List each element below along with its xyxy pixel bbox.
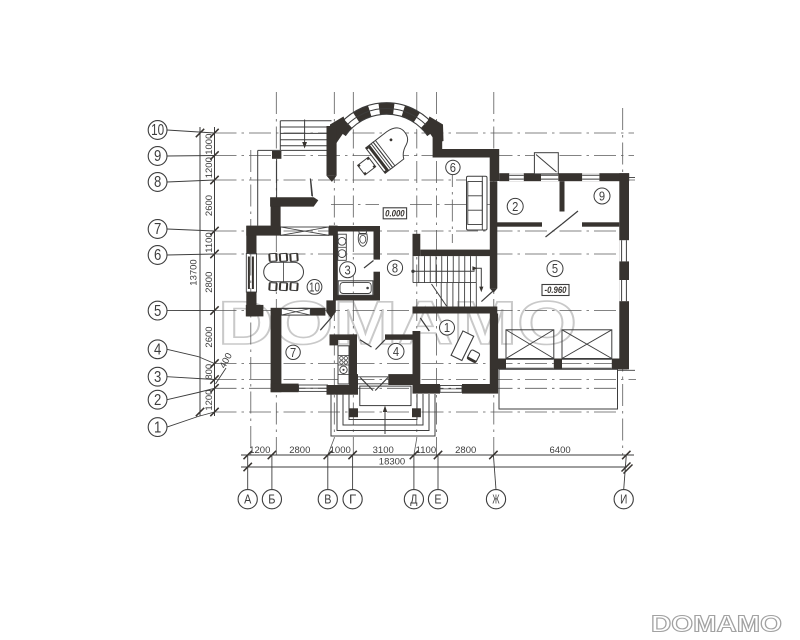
svg-text:3: 3 bbox=[345, 262, 351, 277]
svg-text:1100: 1100 bbox=[204, 232, 215, 252]
svg-text:8: 8 bbox=[392, 260, 398, 275]
svg-text:-0.960: -0.960 bbox=[545, 284, 568, 295]
svg-text:2: 2 bbox=[154, 392, 161, 409]
svg-text:3: 3 bbox=[154, 369, 161, 386]
svg-text:2800: 2800 bbox=[455, 445, 476, 456]
svg-text:10: 10 bbox=[151, 122, 164, 139]
svg-text:Г: Г bbox=[349, 493, 356, 507]
svg-text:6400: 6400 bbox=[550, 445, 571, 456]
svg-text:7: 7 bbox=[154, 221, 161, 238]
svg-text:1200: 1200 bbox=[204, 157, 215, 178]
svg-text:6: 6 bbox=[450, 160, 456, 175]
svg-text:1200: 1200 bbox=[249, 445, 270, 456]
svg-text:1000: 1000 bbox=[204, 134, 215, 155]
svg-text:10: 10 bbox=[309, 280, 320, 295]
svg-text:2600: 2600 bbox=[204, 326, 215, 347]
svg-text:7: 7 bbox=[290, 345, 296, 360]
svg-text:5: 5 bbox=[552, 261, 558, 276]
svg-text:И: И bbox=[620, 493, 627, 507]
svg-text:Б: Б bbox=[268, 493, 275, 507]
svg-text:4: 4 bbox=[154, 342, 162, 359]
svg-text:Ж: Ж bbox=[492, 493, 499, 507]
svg-text:Д: Д bbox=[410, 493, 418, 507]
svg-text:Е: Е bbox=[434, 493, 441, 507]
svg-text:2600: 2600 bbox=[204, 195, 215, 216]
svg-text:8: 8 bbox=[154, 174, 161, 191]
svg-text:5: 5 bbox=[154, 303, 161, 320]
svg-text:1200: 1200 bbox=[204, 390, 215, 411]
svg-text:9: 9 bbox=[154, 148, 161, 165]
svg-text:А: А bbox=[244, 493, 252, 507]
svg-text:6: 6 bbox=[154, 247, 161, 264]
svg-text:1100: 1100 bbox=[416, 445, 436, 456]
svg-text:9: 9 bbox=[599, 189, 605, 204]
svg-text:1000: 1000 bbox=[330, 445, 351, 456]
svg-text:DOMAMO: DOMAMO bbox=[651, 611, 782, 637]
svg-text:1: 1 bbox=[444, 320, 450, 335]
svg-text:800: 800 bbox=[204, 364, 215, 380]
svg-text:18300: 18300 bbox=[379, 457, 405, 468]
svg-text:В: В bbox=[324, 493, 331, 507]
svg-text:3100: 3100 bbox=[373, 445, 394, 456]
svg-text:2: 2 bbox=[512, 199, 518, 214]
svg-text:2800: 2800 bbox=[289, 445, 310, 456]
svg-text:1: 1 bbox=[154, 419, 161, 436]
svg-text:2800: 2800 bbox=[204, 272, 215, 293]
svg-text:4: 4 bbox=[393, 344, 399, 359]
svg-text:13700: 13700 bbox=[189, 259, 200, 285]
svg-text:0.000: 0.000 bbox=[385, 207, 405, 218]
